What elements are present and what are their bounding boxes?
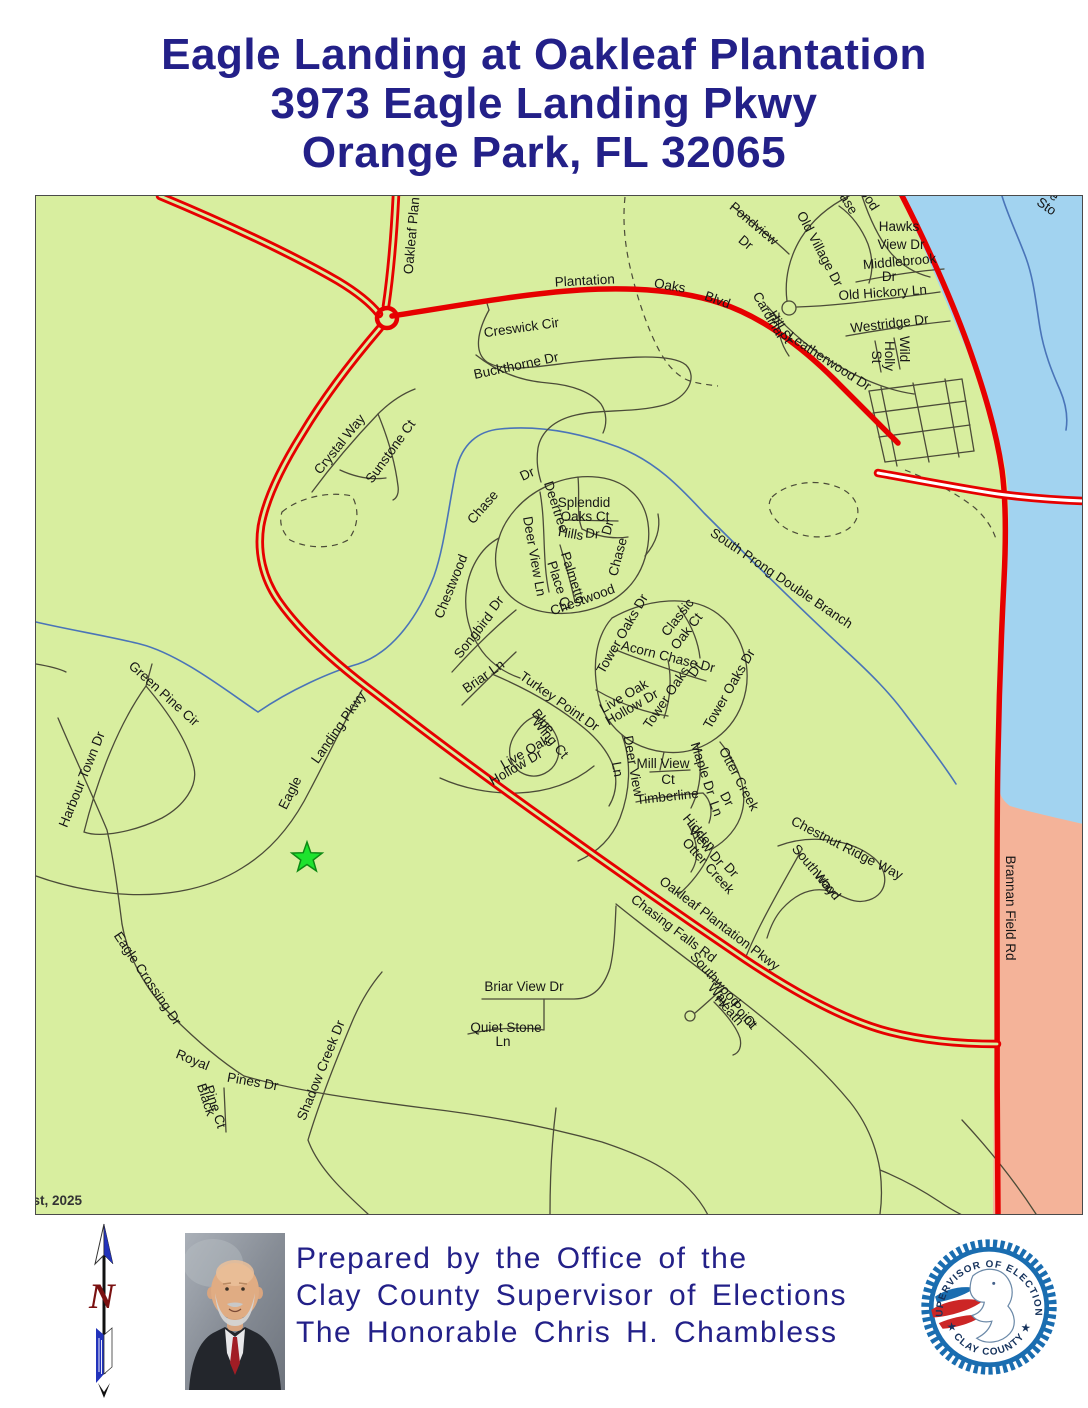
street-label: Ln <box>609 761 626 778</box>
title-line1: Eagle Landing at Oakleaf Plantation <box>0 30 1088 79</box>
prepared-by-text: Prepared by the Office of the Clay Count… <box>296 1240 847 1351</box>
prepared-line1: Prepared by the Office of the <box>296 1240 847 1277</box>
salmon-district-area <box>993 787 1083 1215</box>
street-label: Splendid <box>558 495 611 510</box>
street-label: Wild <box>897 336 912 362</box>
street-label: Hawks <box>879 219 920 234</box>
elections-seal: SUPERVISOR OF ELECTIONS ★ CLAY COUNTY ★ <box>918 1236 1060 1378</box>
street-label: Ln <box>495 1034 510 1049</box>
title-line2: 3973 Eagle Landing Pkwy <box>0 79 1088 128</box>
street-label: Brannan Field Rd <box>1003 855 1018 960</box>
fletching-white <box>104 1328 112 1374</box>
prepared-line2: Clay County Supervisor of Elections <box>296 1277 847 1314</box>
map-date-label: August, 2025 <box>35 1193 83 1208</box>
street-label: Ct <box>661 772 675 787</box>
north-arrow: N <box>83 1222 125 1404</box>
street-label: Dr <box>882 269 897 284</box>
street-label: Plantation <box>554 271 615 289</box>
fletching-blue <box>96 1328 104 1383</box>
official-portrait <box>185 1233 285 1390</box>
arrow-tail <box>98 1383 110 1398</box>
page-title: Eagle Landing at Oakleaf Plantation 3973… <box>0 30 1088 177</box>
flyer-page: Eagle Landing at Oakleaf Plantation 3973… <box>0 0 1088 1408</box>
title-line3: Orange Park, FL 32065 <box>0 128 1088 177</box>
street-label: View Dr <box>877 237 925 252</box>
street-label: St <box>869 351 884 364</box>
street-label: Mill View <box>636 756 689 771</box>
north-letter: N <box>88 1276 117 1316</box>
street-label: Quiet Stone <box>470 1020 541 1035</box>
prepared-line3: The Honorable Chris H. Chambless <box>296 1314 847 1351</box>
street-map: Oakleaf PlanPlantationOaksBlvdCreswick C… <box>35 195 1083 1215</box>
street-label: Briar View Dr <box>484 979 564 994</box>
